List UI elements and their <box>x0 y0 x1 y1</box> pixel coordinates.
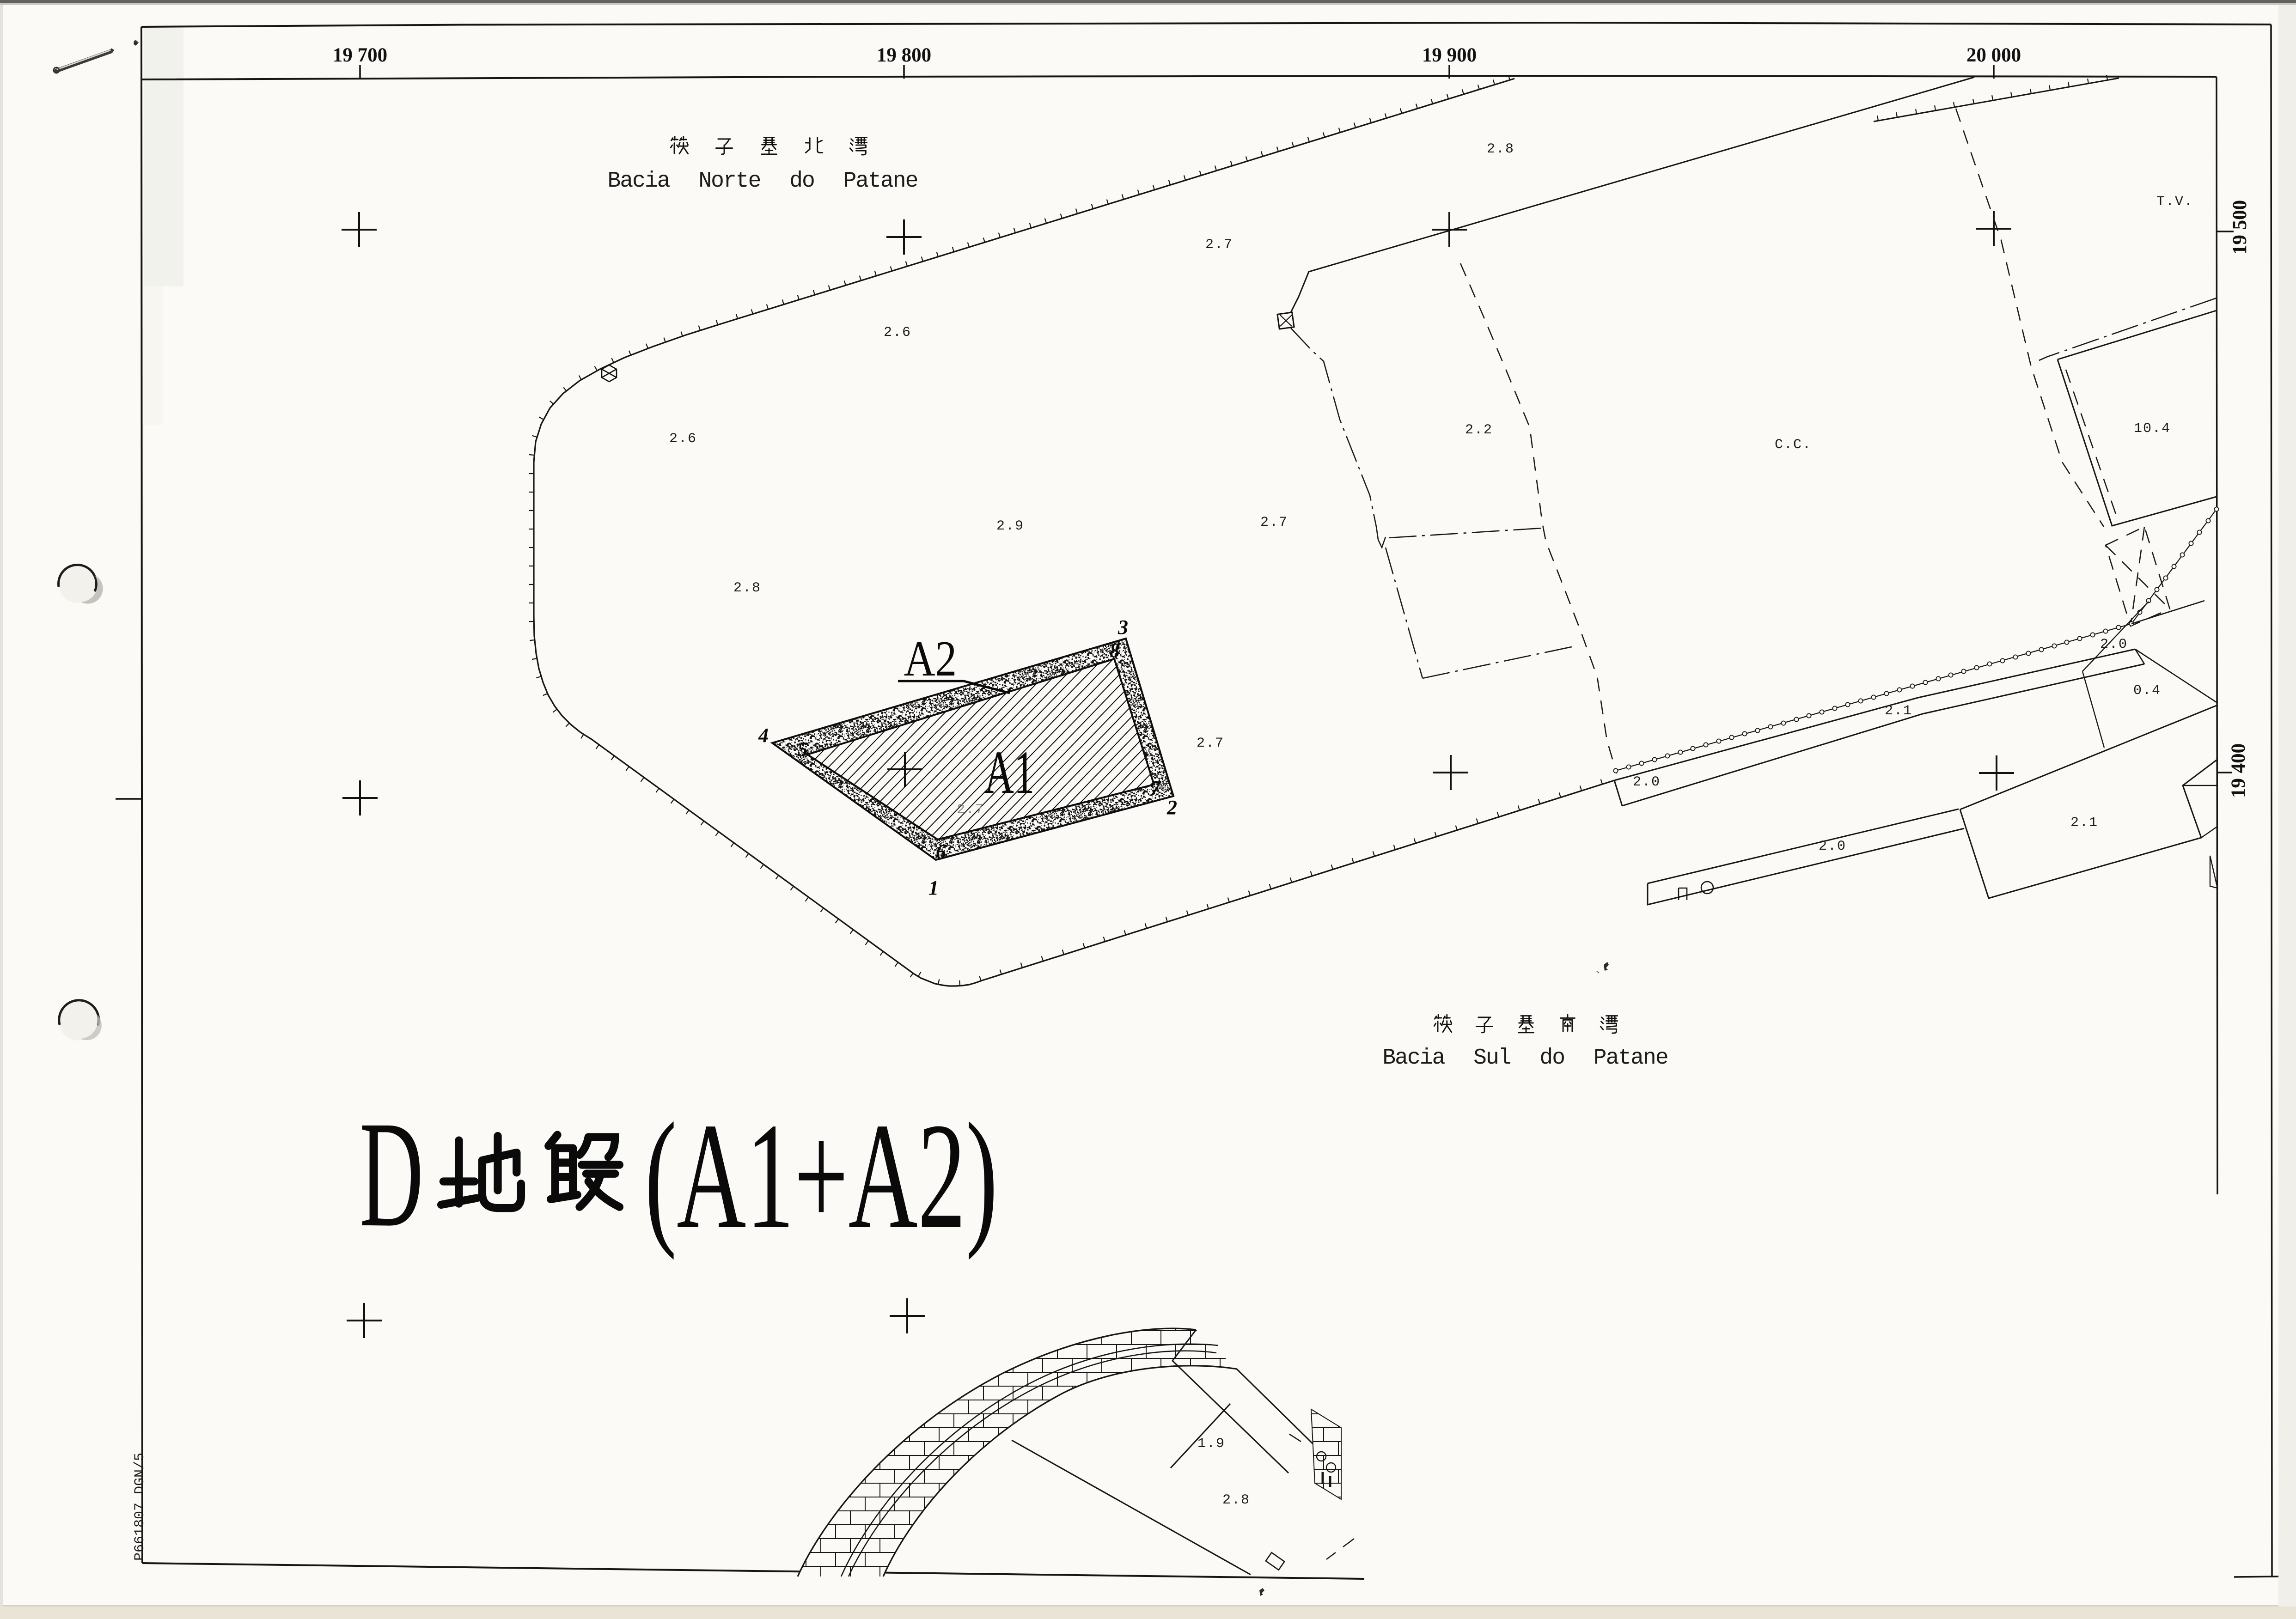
svg-text:2.6: 2.6 <box>669 431 697 447</box>
svg-text:6: 6 <box>936 840 946 863</box>
svg-text:2.7: 2.7 <box>1260 515 1288 530</box>
svg-text:5: 5 <box>798 738 808 761</box>
svg-text:2.0: 2.0 <box>1819 839 1846 854</box>
svg-text:2.2: 2.2 <box>1465 422 1493 438</box>
svg-text:2.8: 2.8 <box>1222 1492 1250 1508</box>
svg-text:19 500: 19 500 <box>2229 200 2251 255</box>
svg-text:(A1+A2): (A1+A2) <box>645 1091 998 1261</box>
svg-text:2.8: 2.8 <box>1487 141 1514 157</box>
svg-text:10.4: 10.4 <box>2134 421 2171 437</box>
svg-text:19 700: 19 700 <box>333 44 387 66</box>
svg-text:7: 7 <box>1150 777 1161 799</box>
svg-text:T.V.: T.V. <box>2156 194 2193 210</box>
svg-text:2.7: 2.7 <box>1197 736 1224 751</box>
svg-text:2.6: 2.6 <box>884 325 911 341</box>
svg-text:3: 3 <box>1117 616 1128 639</box>
svg-text:2.9: 2.9 <box>996 518 1024 534</box>
svg-text:2.1: 2.1 <box>2070 815 2098 831</box>
svg-text:20 000: 20 000 <box>1966 44 2021 66</box>
svg-text:0.4: 0.4 <box>2133 683 2161 699</box>
svg-text:19 400: 19 400 <box>2228 743 2249 798</box>
svg-text:Bacia Norte do Patane: Bacia Norte do Patane <box>608 169 918 194</box>
svg-text:A1: A1 <box>984 739 1035 807</box>
svg-text:2.0: 2.0 <box>2100 637 2128 652</box>
svg-text:2.1: 2.1 <box>1885 703 1912 719</box>
svg-text:19 900: 19 900 <box>1422 44 1477 66</box>
svg-text:P661807.DGN/5: P661807.DGN/5 <box>132 1453 148 1561</box>
svg-text:19 800: 19 800 <box>877 44 931 66</box>
svg-text:Bacia Sul do Patane: Bacia Sul do Patane <box>1382 1046 1667 1071</box>
svg-text:D: D <box>360 1090 423 1259</box>
svg-text:A2: A2 <box>904 630 957 686</box>
svg-text:4: 4 <box>758 724 769 747</box>
svg-text:2.7: 2.7 <box>957 802 984 818</box>
svg-text:2: 2 <box>1166 796 1177 819</box>
svg-text:2.7: 2.7 <box>1205 237 1233 253</box>
svg-text:2.8: 2.8 <box>733 580 761 596</box>
svg-text:1: 1 <box>928 876 939 899</box>
svg-text:1.9: 1.9 <box>1197 1436 1225 1452</box>
svg-text:2.0: 2.0 <box>1633 774 1661 790</box>
svg-text:C.C.: C.C. <box>1775 437 1812 453</box>
svg-text:8: 8 <box>1110 639 1120 662</box>
